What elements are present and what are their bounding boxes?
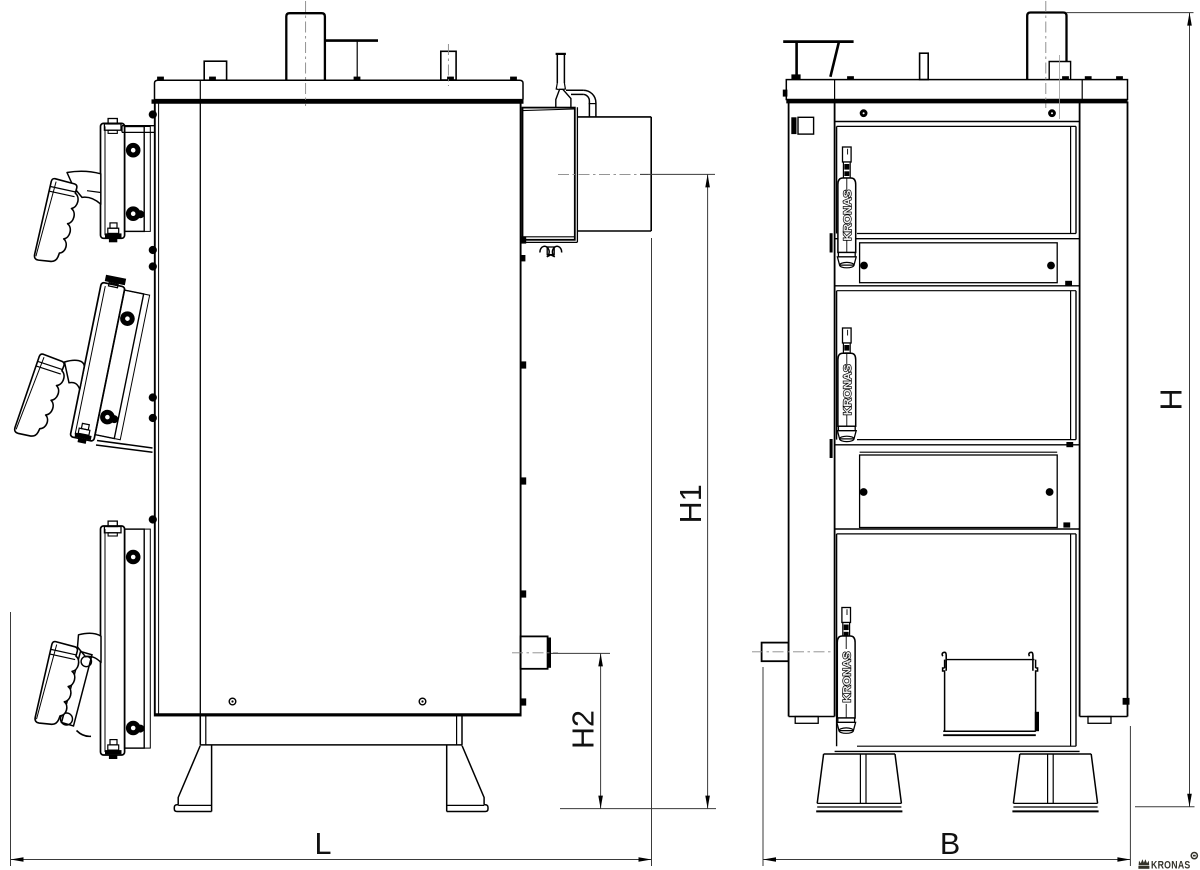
svg-text:H: H: [1154, 388, 1188, 410]
svg-text:H2: H2: [567, 710, 601, 749]
svg-text:L: L: [315, 827, 332, 861]
svg-text:KRONAS: KRONAS: [1151, 859, 1191, 870]
svg-text:B: B: [940, 827, 960, 861]
svg-text:KRONAS: KRONAS: [842, 190, 854, 241]
svg-text:H1: H1: [674, 484, 708, 523]
svg-text:KRONAS: KRONAS: [842, 364, 854, 415]
svg-text:KRONAS: KRONAS: [841, 652, 853, 703]
